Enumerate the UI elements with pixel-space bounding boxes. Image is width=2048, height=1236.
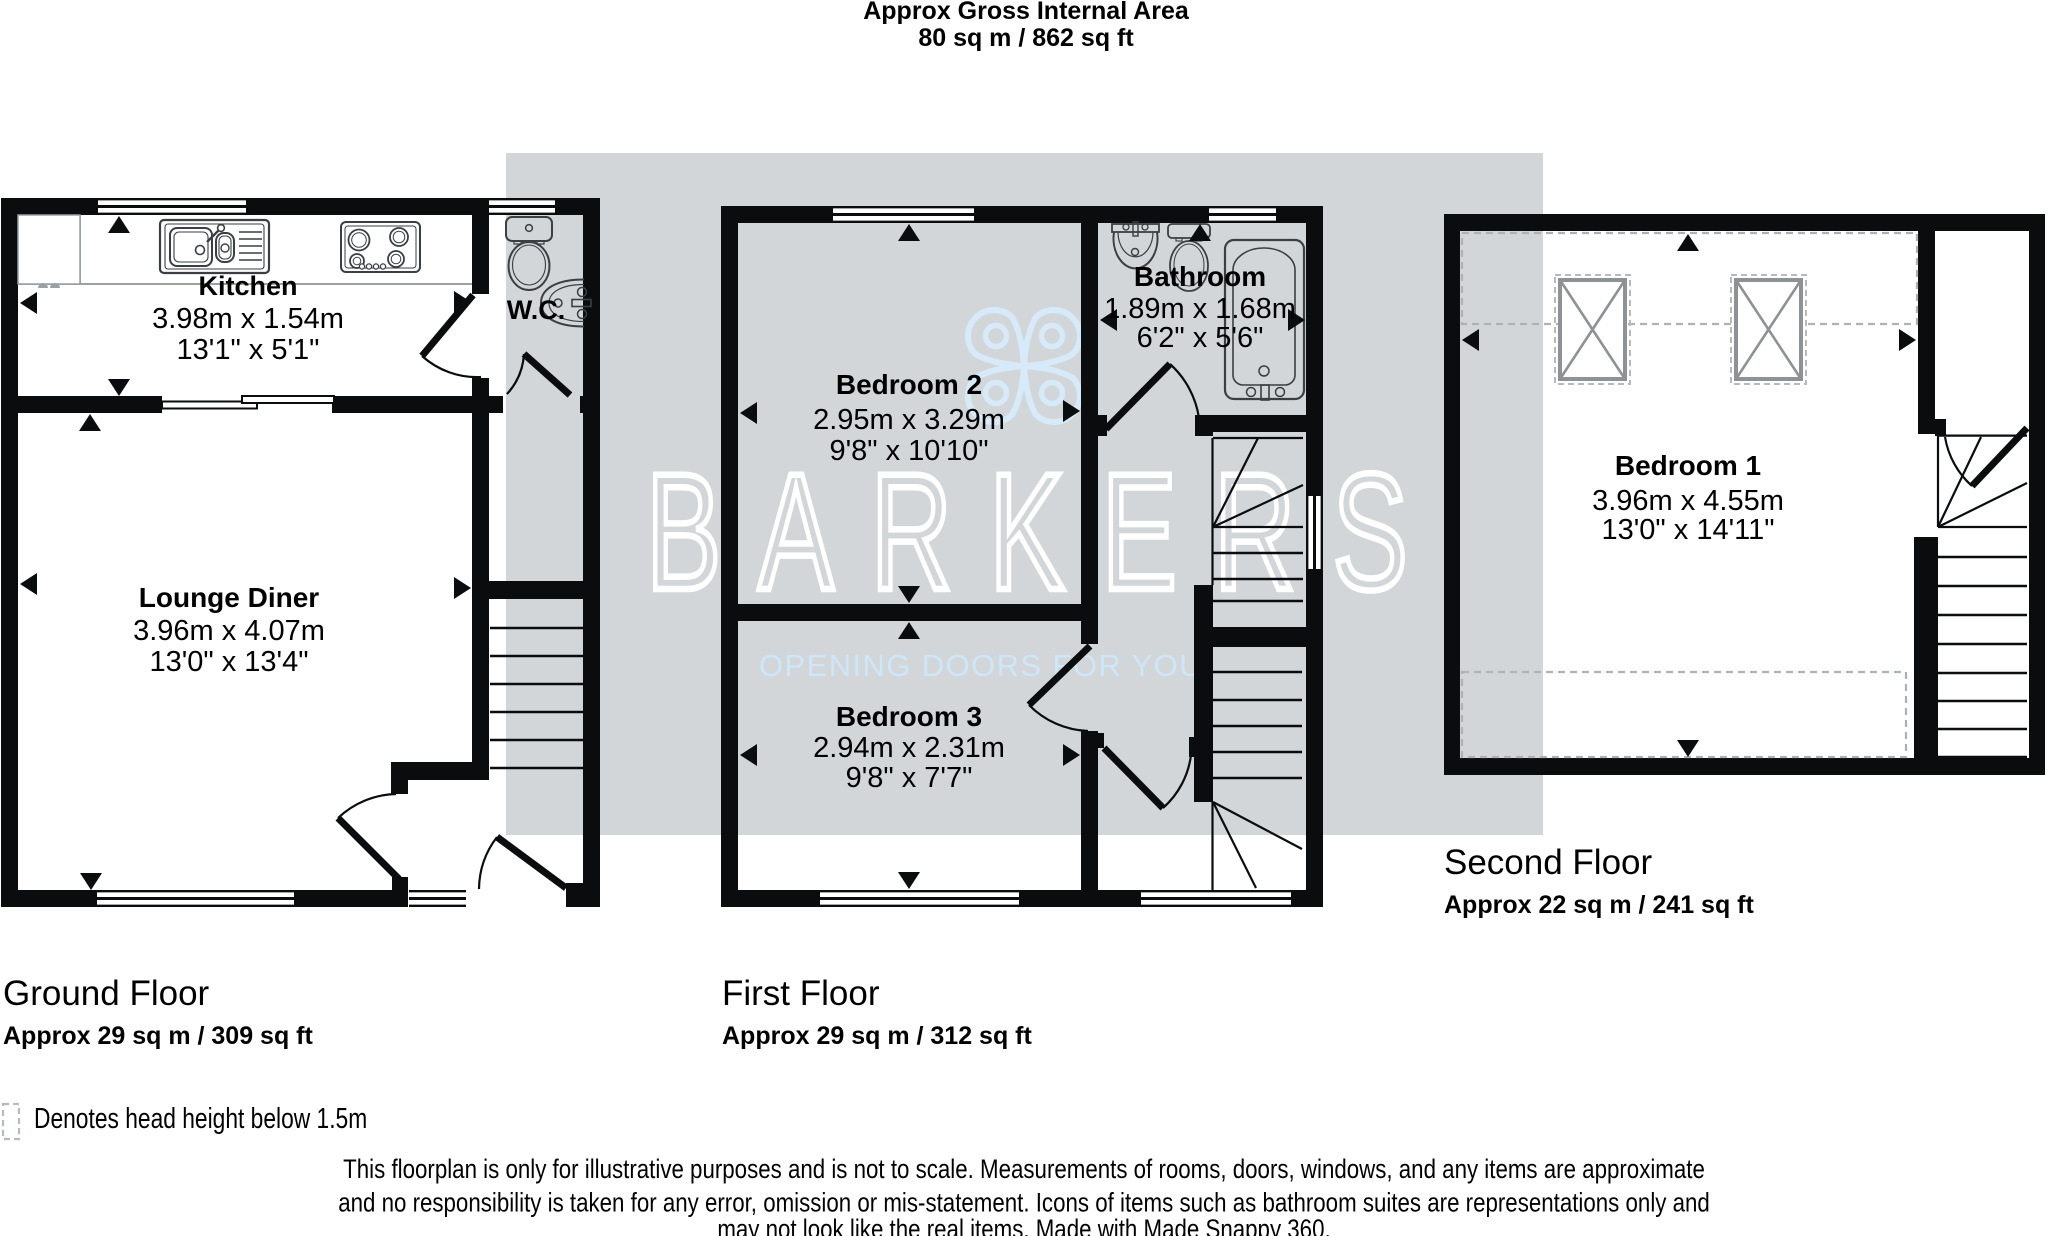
svg-text:3.96m x 4.07m: 3.96m x 4.07m bbox=[133, 615, 325, 647]
svg-text:Ground Floor: Ground Floor bbox=[3, 974, 210, 1013]
svg-text:Bedroom 2: Bedroom 2 bbox=[836, 369, 982, 400]
svg-text:2.95m x 3.29m: 2.95m x 3.29m bbox=[813, 404, 1005, 436]
svg-text:Kitchen: Kitchen bbox=[198, 271, 297, 301]
svg-text:1.89m x 1.68m: 1.89m x 1.68m bbox=[1104, 293, 1296, 325]
svg-text:2.94m x 2.31m: 2.94m x 2.31m bbox=[813, 732, 1005, 764]
svg-text:W.C.: W.C. bbox=[507, 295, 566, 325]
svg-text:Approx 29 sq m / 312 sq ft: Approx 29 sq m / 312 sq ft bbox=[722, 1022, 1032, 1050]
svg-text:9'8" x 10'10": 9'8" x 10'10" bbox=[829, 435, 988, 467]
svg-text:6'2" x 5'6": 6'2" x 5'6" bbox=[1137, 322, 1264, 354]
svg-text:13'0" x 14'11": 13'0" x 14'11" bbox=[1601, 514, 1774, 546]
svg-text:OPENING DOORS FOR YOU: OPENING DOORS FOR YOU bbox=[759, 648, 1203, 683]
svg-text:BARKERS: BARKERS bbox=[646, 440, 1445, 625]
svg-text:Approx Gross Internal Area: Approx Gross Internal Area bbox=[863, 0, 1190, 25]
svg-text:80 sq m / 862 sq ft: 80 sq m / 862 sq ft bbox=[918, 24, 1134, 52]
svg-text:Approx 29 sq m / 309 sq ft: Approx 29 sq m / 309 sq ft bbox=[3, 1022, 313, 1050]
svg-text:3.98m x 1.54m: 3.98m x 1.54m bbox=[152, 303, 344, 335]
svg-text:13'0" x 13'4": 13'0" x 13'4" bbox=[149, 646, 308, 678]
svg-text:13'1" x 5'1": 13'1" x 5'1" bbox=[177, 334, 320, 366]
svg-text:Lounge Diner: Lounge Diner bbox=[139, 582, 320, 613]
svg-text:3.96m x 4.55m: 3.96m x 4.55m bbox=[1592, 485, 1784, 517]
svg-text:Bedroom 3: Bedroom 3 bbox=[836, 701, 982, 732]
svg-text:may not look like the real ite: may not look like the real items. Made w… bbox=[717, 1214, 1330, 1236]
svg-text:Second Floor: Second Floor bbox=[1444, 843, 1653, 882]
svg-text:First Floor: First Floor bbox=[722, 974, 880, 1013]
svg-text:Bathroom: Bathroom bbox=[1134, 261, 1266, 292]
svg-text:Denotes head height below 1.5m: Denotes head height below 1.5m bbox=[34, 1104, 367, 1135]
svg-text:Approx 22 sq m / 241 sq ft: Approx 22 sq m / 241 sq ft bbox=[1444, 891, 1754, 919]
svg-text:9'8" x 7'7": 9'8" x 7'7" bbox=[846, 762, 973, 794]
svg-text:This floorplan is only for ill: This floorplan is only for illustrative … bbox=[343, 1154, 1705, 1185]
svg-text:Bedroom 1: Bedroom 1 bbox=[1615, 450, 1761, 481]
